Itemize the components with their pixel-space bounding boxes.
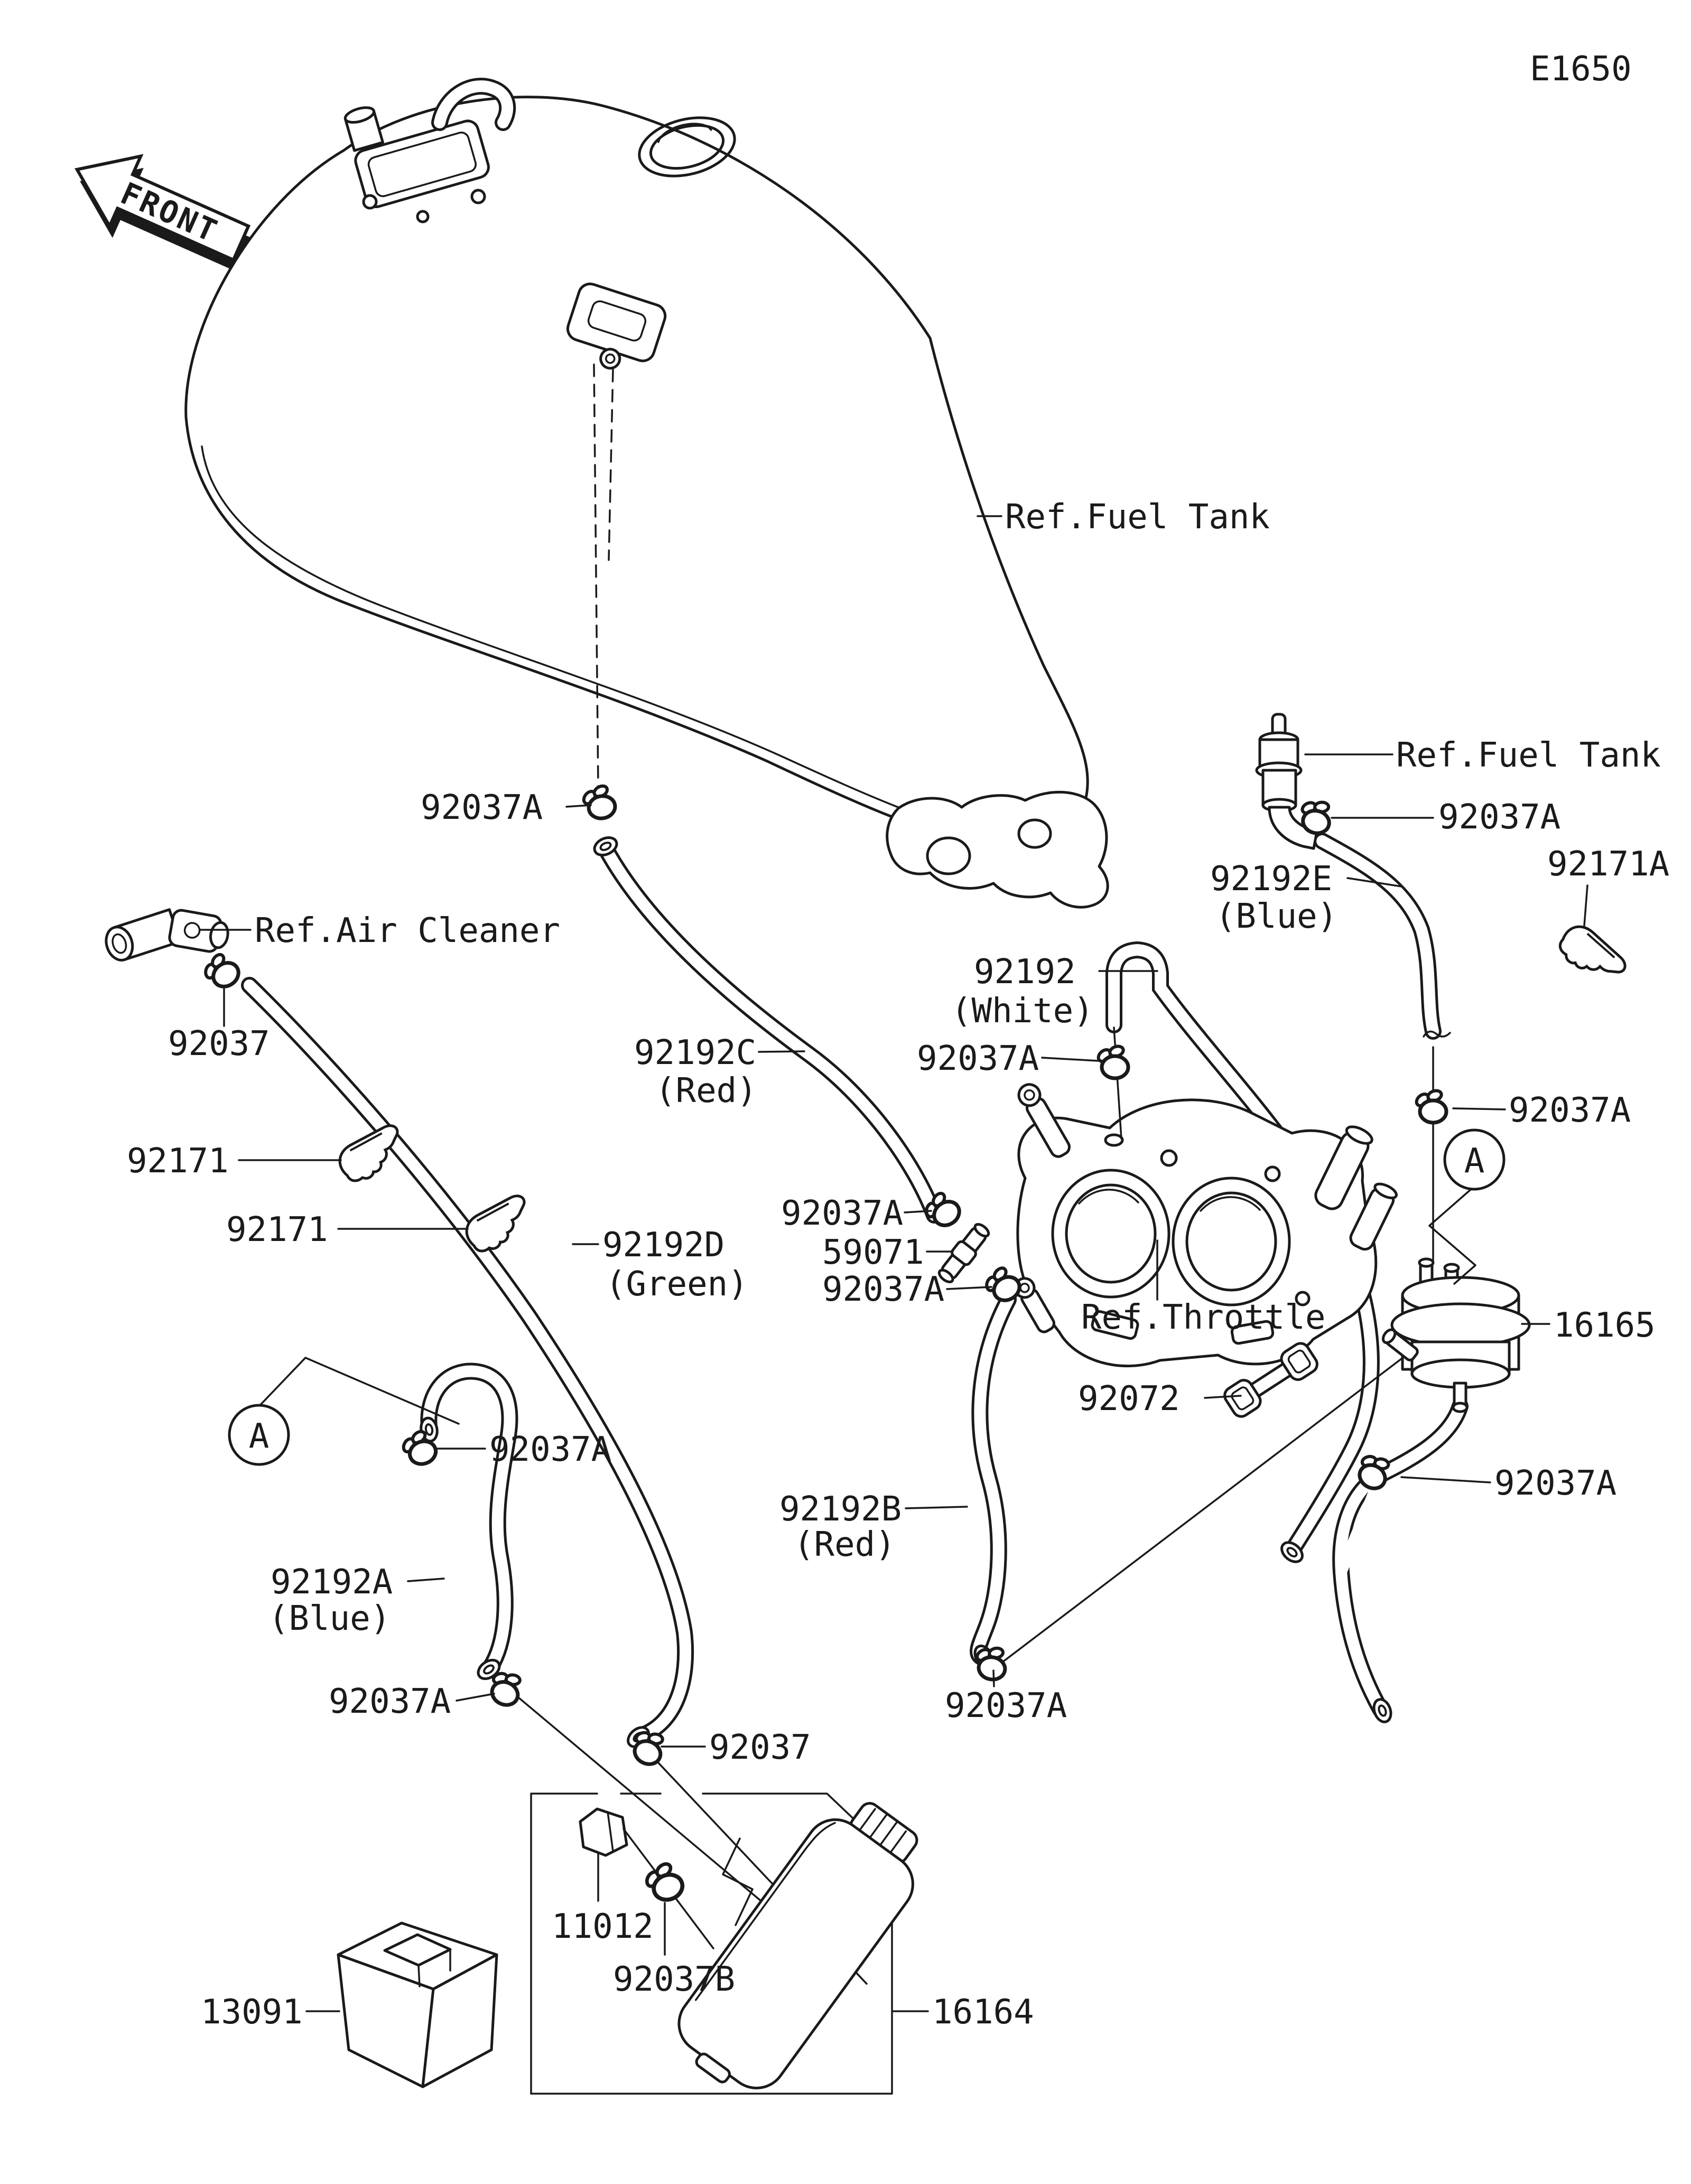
label-clamp-hose-d-end: 92037 [709, 1728, 811, 1767]
label-hose-a-color: (Blue) [268, 1599, 391, 1638]
label-hose-b-color: (Red) [794, 1525, 896, 1564]
label-clamp-hook: 92037A [489, 1430, 611, 1469]
label-hose-d: 92192D [602, 1226, 724, 1265]
label-clamp-hose-a-end: 92037A [329, 1682, 451, 1721]
label-hose-e-color: (Blue) [1215, 897, 1337, 936]
label-clip-2: 92171 [226, 1210, 328, 1249]
label-joint: 59071 [822, 1233, 924, 1272]
label-hose-white: 92192 [974, 953, 1076, 992]
label-canister: 16164 [932, 1993, 1034, 2032]
label-clamp-valve: 92037A [1438, 798, 1560, 837]
label-clip-1: 92171 [127, 1142, 229, 1181]
page-code: E1650 [1530, 50, 1632, 89]
clamp-92037A-joint-lower [979, 1263, 1024, 1308]
label-clamp-tank-bottom: 92037A [421, 788, 543, 827]
clip-92171-2 [462, 1195, 530, 1253]
detail-circle-a-right: A [1429, 1130, 1504, 1284]
label-clamp-hose-b-end: 92037A [945, 1686, 1067, 1725]
clip-92171A [1555, 914, 1628, 992]
parts-diagram-canvas: E1650 FRONT [0, 0, 1691, 2184]
label-hose-e: 92192E [1210, 860, 1332, 899]
label-clamp-filter-bottom: 92037A [1494, 1464, 1616, 1503]
fuel-filter-16165 [1381, 1259, 1529, 1412]
clamp-92037A-filter-top [1414, 1089, 1446, 1123]
fuel-tank [186, 86, 1108, 907]
detail-a-left-label: A [249, 1417, 270, 1456]
label-hose-a: 92192A [271, 1563, 393, 1602]
tank-rear-bracket [887, 792, 1108, 907]
label-clamp-joint-upper: 92037A [781, 1194, 903, 1233]
break-mark [723, 1838, 752, 1925]
label-hose-d-color: (Green) [606, 1265, 748, 1304]
clamp-92037A-white-hose [1096, 1044, 1128, 1078]
label-ref-air-cleaner: Ref.Air Cleaner [255, 911, 560, 950]
label-hose-c-color: (Red) [655, 1071, 757, 1110]
cap-11012 [580, 1809, 627, 1855]
clamp-92037A-tank-bottom [580, 783, 617, 822]
label-clamp-filter-top: 92037A [1509, 1091, 1631, 1130]
label-fuel-filter: 16165 [1554, 1306, 1656, 1345]
label-hose-b: 92192B [779, 1490, 902, 1529]
parts-diagram-page: E1650 FRONT [0, 0, 1691, 2184]
canister-16164 [661, 1784, 942, 2108]
label-clamp-joint-lower: 92037A [822, 1270, 944, 1309]
label-clamp-canister: 92037B [613, 1960, 735, 1999]
label-clip-a: 92171A [1547, 845, 1669, 884]
label-hose-white-color: (White) [951, 992, 1094, 1031]
label-hose-c: 92192C [634, 1033, 756, 1072]
label-cap: 11012 [552, 1907, 654, 1946]
clamp-92037B-canister [640, 1859, 686, 1906]
label-ref-throttle: Ref.Throttle [1081, 1298, 1325, 1337]
label-ref-fuel-tank-valve: Ref.Fuel Tank [1396, 736, 1661, 775]
label-band: 92072 [1078, 1379, 1180, 1418]
clamp-92037-air-cleaner [198, 949, 243, 995]
label-holder: 13091 [201, 1993, 303, 2032]
label-ref-fuel-tank: Ref.Fuel Tank [1005, 498, 1270, 537]
label-clamp-air-cleaner: 92037 [168, 1024, 270, 1063]
holder-13091 [338, 1923, 497, 2087]
label-clamp-white-hose: 92037A [917, 1039, 1039, 1078]
fuel-tank-outline [186, 97, 1088, 847]
detail-a-right-label: A [1464, 1142, 1485, 1181]
